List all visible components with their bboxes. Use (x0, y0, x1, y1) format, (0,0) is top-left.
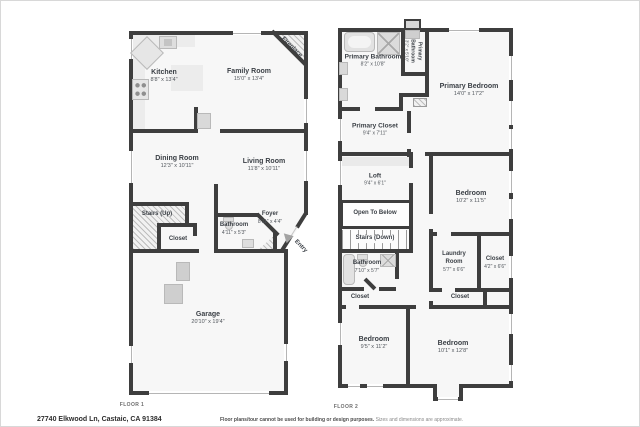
dryer (164, 284, 183, 304)
vanity-sink (339, 88, 348, 101)
wall (338, 152, 413, 156)
window (367, 384, 383, 388)
wall (459, 388, 463, 401)
wall (129, 129, 198, 133)
window (304, 151, 308, 181)
room-label-primary-bedroom: Primary Bedroom 14'0" x 17'2" (440, 82, 499, 98)
bathtub-basin (348, 36, 371, 48)
wall (129, 391, 149, 395)
cabinet (197, 113, 211, 129)
room-label-closet-right: Closet 4'2" x 6'6" (484, 256, 506, 270)
sink-basin (164, 39, 172, 46)
room-label-loft: Loft 9'4" x 6'1" (364, 173, 386, 188)
wall (483, 292, 487, 309)
built-in-shelf (413, 98, 427, 107)
door-opening (129, 346, 133, 363)
wall (451, 232, 513, 236)
window (338, 161, 342, 185)
wall (407, 111, 411, 133)
wall (459, 384, 513, 388)
window (338, 323, 342, 345)
window (509, 314, 513, 334)
room-label-closet: Closet (169, 236, 187, 244)
disclaimer: Floor plans/tour cannot be used for buil… (220, 417, 463, 423)
room-label-primary-bathroom-small: Primary Bathroom 3'2" x 5'10" (404, 37, 423, 65)
stove (132, 79, 149, 100)
room-label-stairs-down: Stairs (Down) (354, 235, 397, 243)
wall (214, 217, 218, 253)
window (509, 365, 513, 381)
room-label-living-room: Living Room 11'8" x 10'11" (243, 157, 285, 173)
window (509, 101, 513, 125)
wall (129, 202, 189, 206)
wall (338, 287, 364, 291)
garage-door (149, 391, 269, 395)
wall (338, 107, 360, 111)
wall (425, 152, 513, 156)
door-opening (284, 344, 288, 361)
window (233, 31, 261, 35)
room-label-closet-left: Closet (351, 294, 369, 302)
floorplan-image: Kitchen 8'8" x 13'4" Family Room 15'0" x… (0, 0, 640, 427)
disclaimer-main: Floor plans/tour cannot be used for buil… (220, 417, 374, 423)
wall (338, 305, 346, 309)
wall (429, 229, 433, 291)
wall (429, 156, 433, 214)
room-label-open-to-below: Open To Below (353, 210, 396, 218)
window (438, 397, 458, 401)
washer (176, 262, 190, 281)
wall (431, 305, 513, 309)
room-label-bedroom-br: Bedroom 10'1" x 12'8" (438, 339, 469, 355)
wall (220, 129, 308, 133)
wall (409, 156, 413, 168)
window (509, 256, 513, 278)
room-label-bathroom2: Bathroom 7'10" x 5'7" (353, 260, 381, 274)
room-label-kitchen: Kitchen 8'8" x 13'4" (150, 68, 177, 84)
wall (129, 249, 199, 253)
wall (157, 223, 197, 227)
room-label-laundry-room: Laundry Room 5'7" x 6'6" (438, 251, 470, 273)
window (348, 384, 360, 388)
room-label-primary-closet: Primary Closet 9'4" x 7'11" (352, 123, 398, 138)
window (509, 171, 513, 193)
wall (269, 391, 288, 395)
wall (379, 287, 396, 291)
shower (377, 32, 400, 55)
room-label-closet-mid: Closet (451, 294, 469, 302)
wall (429, 288, 442, 292)
window (449, 28, 479, 32)
wall (403, 93, 429, 97)
room-label-bedroom-mid: Bedroom 10'2" x 11'5" (456, 189, 487, 205)
room-label-family-room: Family Room 15'0" x 13'4" (227, 67, 271, 83)
property-address: 27740 Elkwood Ln, Castaic, CA 91384 (37, 416, 162, 423)
room-label-bedroom-bl: Bedroom 9'5" x 11'2" (359, 335, 390, 351)
wall (406, 309, 410, 388)
shower (380, 254, 396, 267)
bathroom-sink (242, 239, 254, 248)
room-label-garage: Garage 20'10" x 19'4" (191, 310, 224, 326)
wall (399, 93, 403, 111)
window (509, 129, 513, 149)
room-label-foyer: Foyer 8'11" x 4'4" (258, 211, 282, 225)
window (509, 56, 513, 80)
wall (338, 249, 413, 253)
loft-railing (342, 157, 409, 166)
floor2-tag: FLOOR 2 (334, 404, 358, 410)
room-label-dining-room: Dining Room 12'3" x 10'11" (155, 154, 199, 170)
wall (217, 249, 288, 253)
window (304, 99, 308, 123)
wall (193, 227, 197, 236)
room-label-primary-bathroom: Primary Bathroom 8'2" x 10'8" (345, 54, 402, 69)
wall (304, 31, 308, 215)
room-label-bathroom: Bathroom 4'11" x 5'3" (220, 222, 248, 236)
wall (425, 28, 429, 97)
room-label-stairs-up: Stairs (Up) (142, 211, 172, 219)
disclaimer-sub: Sizes and dimensions are approximate. (376, 417, 464, 423)
wall (284, 249, 288, 395)
window (338, 119, 342, 141)
wall (477, 236, 481, 288)
floor1-tag: FLOOR 1 (120, 402, 144, 408)
wall (429, 232, 437, 236)
window (129, 151, 133, 183)
window (509, 199, 513, 219)
